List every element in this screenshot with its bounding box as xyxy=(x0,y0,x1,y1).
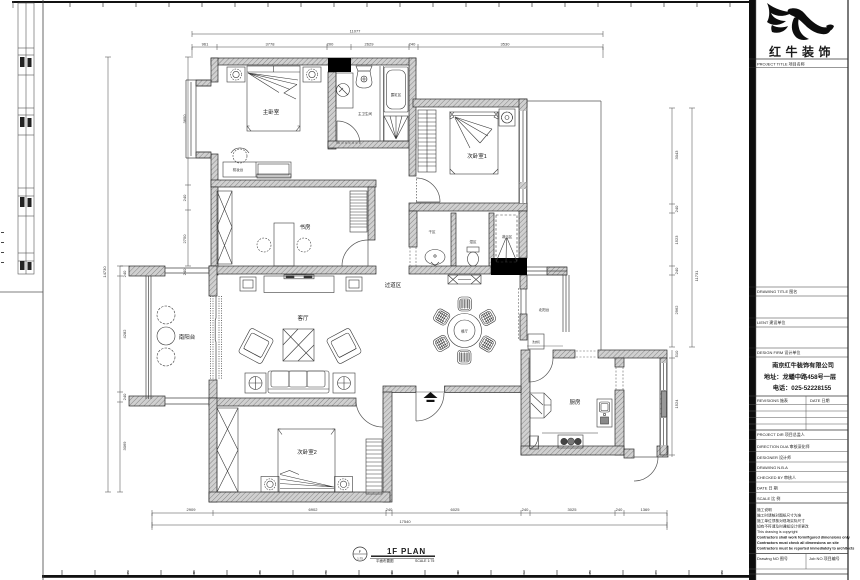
svg-text:DRAWING N.B.A: DRAWING N.B.A xyxy=(757,465,788,470)
svg-text:11731: 11731 xyxy=(694,270,699,282)
svg-text:过道区: 过道区 xyxy=(385,281,402,289)
svg-text:2629: 2629 xyxy=(365,42,375,47)
svg-text:REVISIONS 施表: REVISIONS 施表 xyxy=(757,397,788,403)
svg-text:DATE 日期: DATE 日期 xyxy=(810,397,829,403)
svg-text:施工时请核对图纸尺寸为准: 施工时请核对图纸尺寸为准 xyxy=(757,513,802,518)
svg-text:3778: 3778 xyxy=(266,42,276,47)
svg-text:客厅: 客厅 xyxy=(297,314,309,322)
svg-text:240: 240 xyxy=(409,42,416,47)
svg-text:DRAWING TITLE 图名: DRAWING TITLE 图名 xyxy=(757,288,797,294)
svg-text:主卫生间: 主卫生间 xyxy=(358,111,372,116)
svg-text:湿区: 湿区 xyxy=(470,239,478,244)
svg-text:240: 240 xyxy=(674,205,679,212)
svg-text:SCALE 1:75: SCALE 1:75 xyxy=(415,559,434,563)
svg-text:LIENT 建设单位: LIENT 建设单位 xyxy=(757,319,785,325)
svg-text:2909: 2909 xyxy=(187,507,197,512)
svg-text:Contractors must be reported i: Contractors must be reported immediately… xyxy=(757,547,854,551)
svg-text:厨房: 厨房 xyxy=(569,398,581,406)
svg-text:1524: 1524 xyxy=(674,399,679,409)
svg-text:DATE 日 期: DATE 日 期 xyxy=(757,485,778,491)
svg-text:餐厅: 餐厅 xyxy=(461,329,469,334)
svg-text:南阳台: 南阳台 xyxy=(179,333,196,341)
svg-text:主卧室: 主卧室 xyxy=(263,108,280,116)
svg-text:Contractors must check all dim: Contractors must check all dimensions on… xyxy=(757,541,839,545)
svg-text:地址：龙蟠中路458号一层: 地址：龙蟠中路458号一层 xyxy=(764,373,836,381)
svg-text:1369: 1369 xyxy=(641,507,651,512)
svg-text:11077: 11077 xyxy=(350,29,362,34)
svg-text:L: L xyxy=(655,571,657,575)
svg-text:1:75: 1:75 xyxy=(357,557,363,561)
svg-text:240: 240 xyxy=(182,268,187,275)
svg-text:DESIGN FIRM 设计单位: DESIGN FIRM 设计单位 xyxy=(757,349,800,355)
svg-text:F: F xyxy=(325,571,327,575)
svg-text:This drawing is copyright: This drawing is copyright xyxy=(757,530,798,534)
svg-text:3530: 3530 xyxy=(501,42,511,47)
svg-text:961: 961 xyxy=(202,42,209,47)
svg-text:CHECKED BY 审核人: CHECKED BY 审核人 xyxy=(757,474,796,480)
svg-text:510: 510 xyxy=(674,350,679,357)
svg-text:3025: 3025 xyxy=(568,507,578,512)
svg-text:干区: 干区 xyxy=(429,230,437,234)
svg-text:14730: 14730 xyxy=(102,266,107,278)
svg-text:电话：025-52228155: 电话：025-52228155 xyxy=(773,384,832,392)
svg-text:北阳台: 北阳台 xyxy=(539,307,550,312)
svg-text:次卧室1: 次卧室1 xyxy=(467,152,487,160)
svg-text:240: 240 xyxy=(522,507,529,512)
svg-text:书房: 书房 xyxy=(299,223,311,231)
svg-text:DESIGNER 设计师: DESIGNER 设计师 xyxy=(757,454,791,460)
svg-text:次卧室2: 次卧室2 xyxy=(297,448,317,456)
svg-text:4282: 4282 xyxy=(122,329,127,339)
svg-text:Job NO 项目编号: Job NO 项目编号 xyxy=(809,555,840,561)
svg-text:200: 200 xyxy=(327,42,334,47)
svg-text:施工说明: 施工说明 xyxy=(757,507,772,512)
svg-text:Drawing NO 图号: Drawing NO 图号 xyxy=(757,555,788,561)
svg-text:施工单位须核对现场实际尺寸: 施工单位须核对现场实际尺寸 xyxy=(757,518,805,523)
svg-text:240: 240 xyxy=(674,267,679,274)
svg-text:6025: 6025 xyxy=(451,507,461,512)
svg-text:平面布置图: 平面布置图 xyxy=(376,558,394,563)
svg-text:240: 240 xyxy=(122,393,127,400)
svg-text:PROJECT TITLE 项目名称: PROJECT TITLE 项目名称 xyxy=(757,61,805,67)
svg-text:PROJECT DIR 项目总监人: PROJECT DIR 项目总监人 xyxy=(757,431,805,437)
svg-text:17540: 17540 xyxy=(399,519,411,524)
svg-text:淋浴区: 淋浴区 xyxy=(502,234,513,239)
svg-text:1F PLAN: 1F PLAN xyxy=(387,547,426,556)
svg-text:240: 240 xyxy=(122,270,127,277)
svg-text:1523: 1523 xyxy=(674,235,679,245)
svg-text:2962: 2962 xyxy=(674,305,679,315)
svg-text:红牛装饰: 红牛装饰 xyxy=(769,44,835,59)
svg-text:2750: 2750 xyxy=(182,234,187,244)
svg-text:南京红牛装饰有限公司: 南京红牛装饰有限公司 xyxy=(772,362,834,370)
svg-text:梳妆台: 梳妆台 xyxy=(233,167,244,172)
svg-text:240: 240 xyxy=(616,507,623,512)
svg-text:如有不符请及时通知设计师更改: 如有不符请及时通知设计师更改 xyxy=(757,524,809,529)
svg-text:6902: 6902 xyxy=(309,507,319,512)
svg-text:Contractors shall work form/fi: Contractors shall work form/figured dime… xyxy=(757,536,851,540)
svg-text:240: 240 xyxy=(182,194,187,201)
svg-text:240: 240 xyxy=(386,507,393,512)
svg-text:3069: 3069 xyxy=(122,441,127,451)
svg-text:DIRECTION DUA 审核深化师: DIRECTION DUA 审核深化师 xyxy=(757,443,809,449)
svg-text:露缸区: 露缸区 xyxy=(391,92,402,97)
svg-text:洗衣机: 洗衣机 xyxy=(532,340,540,344)
svg-text:E: E xyxy=(259,571,261,575)
svg-text:3043: 3043 xyxy=(674,150,679,160)
svg-text:SCALE 比 例: SCALE 比 例 xyxy=(757,495,780,501)
